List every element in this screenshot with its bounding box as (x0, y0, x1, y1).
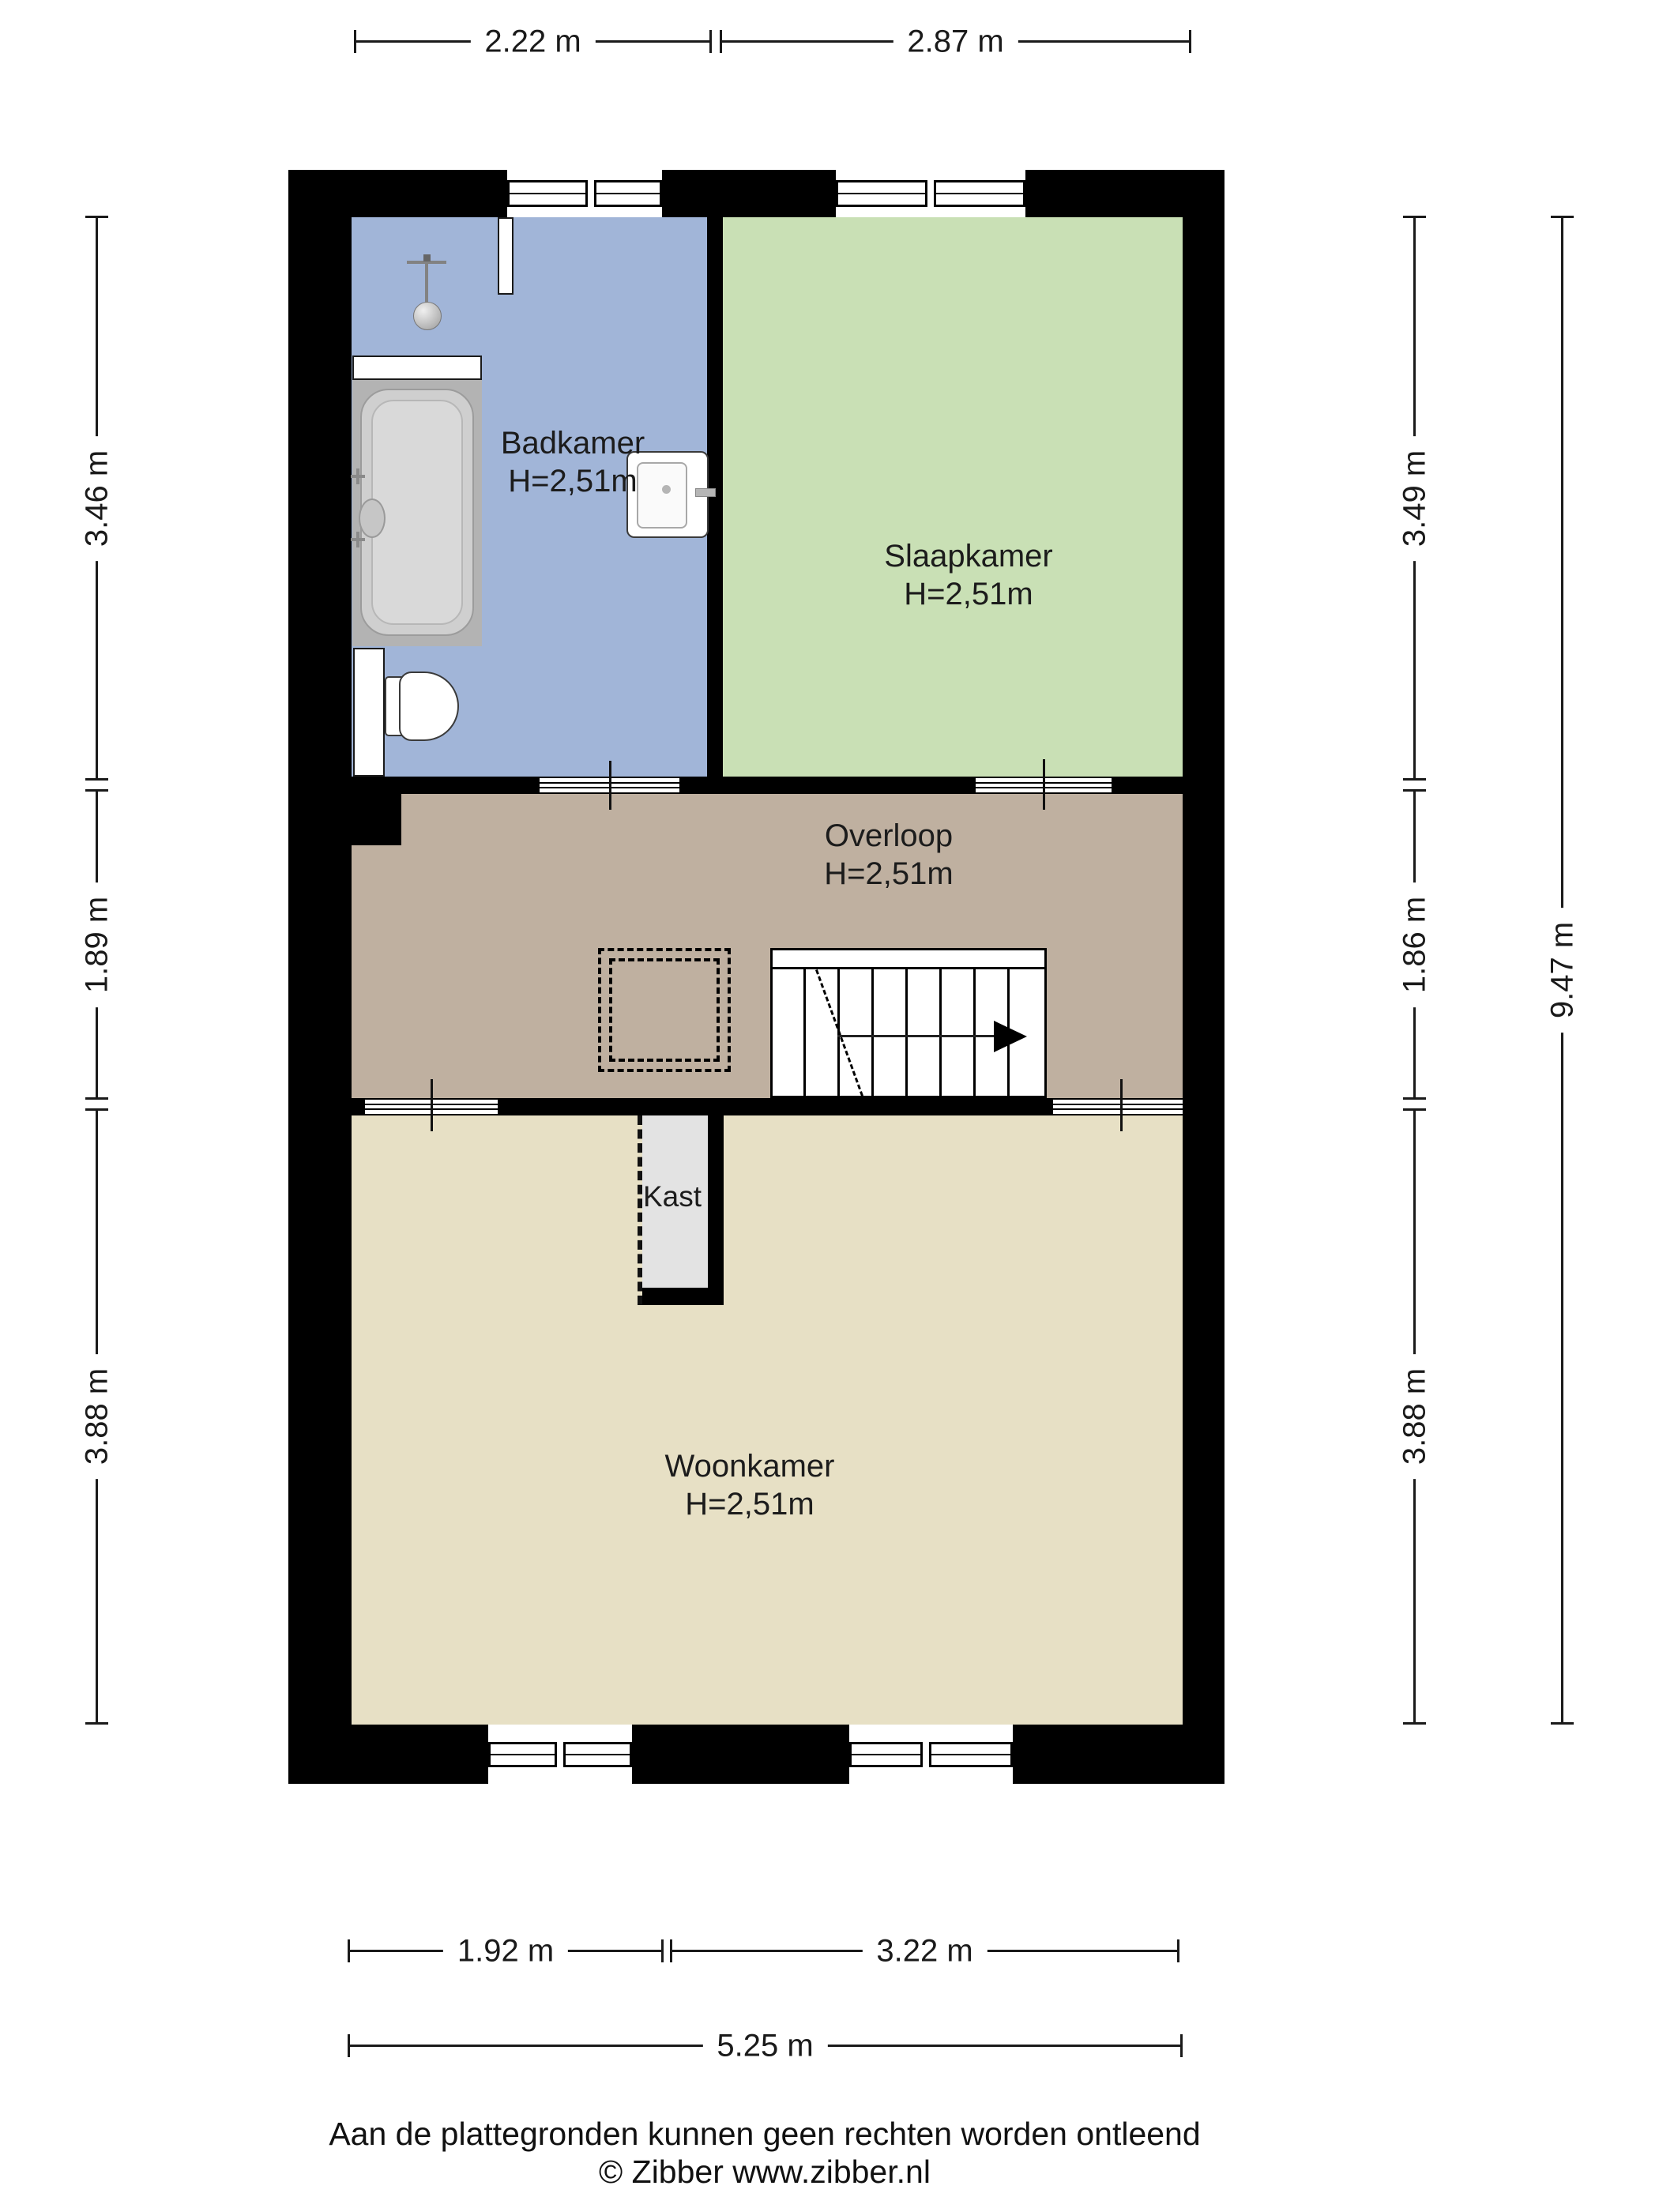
kast-wall-right (708, 1115, 724, 1305)
dim-bottom-total: 5.25 m (348, 2045, 1183, 2047)
ceiling-hatch-inner (609, 958, 720, 1062)
bathtub-spout-icon (359, 498, 386, 538)
room-label-overloop: Overloop H=2,51m (824, 817, 953, 893)
window-glass-line (510, 193, 660, 194)
shower-screen-stub (498, 217, 513, 295)
window-frame (488, 1742, 632, 1767)
window-top-right (836, 170, 1025, 217)
shower-head-icon (403, 253, 450, 332)
room-name: Kast (643, 1180, 702, 1213)
stairs-arrowhead-icon (994, 1021, 1027, 1052)
room-label-slaapkamer: Slaapkamer H=2,51m (884, 537, 1052, 613)
wall-jog (352, 794, 401, 845)
floor-plan: Badkamer H=2,51m Slaapkamer H=2,51m Over… (0, 0, 1659, 2212)
window-mullion (920, 1742, 931, 1767)
window-bottom-right (849, 1725, 1013, 1784)
window-frame (849, 1742, 1013, 1767)
dim-bottom-total-label: 5.25 m (702, 2026, 827, 2065)
room-name: Overloop (824, 817, 953, 855)
kast-dashed-edge (638, 1115, 642, 1305)
door-tick-badkamer (609, 761, 611, 810)
sink-drain (662, 485, 671, 494)
room-name: Woonkamer (665, 1447, 835, 1485)
window-mullion (925, 180, 936, 207)
room-height: H=2,51m (824, 855, 953, 893)
copyright-text: © Zibber www.zibber.nl (329, 2154, 1200, 2191)
stair-tread (803, 969, 806, 1096)
toilet-icon (385, 670, 460, 743)
stair-tread (905, 969, 908, 1096)
stairs-direction-arrow-icon (837, 1035, 999, 1037)
footer: Aan de plattegronden kunnen geen rechten… (329, 2116, 1200, 2191)
stair-tread (973, 969, 976, 1096)
kast-wall-bottom (642, 1288, 724, 1305)
dim-bottom-left: 1.92 m (348, 1950, 664, 1952)
window-mullion (585, 180, 596, 207)
door-tick-slaapkamer (1043, 759, 1045, 810)
room-name: Slaapkamer (884, 537, 1052, 575)
room-overloop-floor (352, 794, 1183, 1098)
window-frame (836, 180, 1025, 207)
dim-bottom-left-label: 1.92 m (443, 1932, 568, 1970)
room-label-badkamer: Badkamer H=2,51m (501, 424, 645, 500)
room-woonkamer-floor (352, 1115, 1183, 1725)
room-label-woonkamer: Woonkamer H=2,51m (665, 1447, 835, 1523)
room-height: H=2,51m (665, 1485, 835, 1523)
room-height: H=2,51m (884, 575, 1052, 613)
window-frame (507, 180, 662, 207)
bathtub-tap-icon (356, 468, 359, 484)
dim-bottom-right-label: 3.22 m (862, 1932, 987, 1970)
shower-sphere (413, 302, 442, 330)
disclaimer-text: Aan de plattegronden kunnen geen rechten… (329, 2116, 1200, 2154)
dim-bottom-right: 3.22 m (670, 1950, 1179, 1952)
shower-stem (425, 264, 428, 305)
badkamer-door-panel (353, 648, 385, 777)
bath-partition (352, 355, 482, 380)
bathtub-tap-icon (356, 532, 359, 547)
door-tick-woonkamer-right (1120, 1079, 1123, 1131)
sink-faucet-icon (695, 488, 716, 497)
room-name: Badkamer (501, 424, 645, 462)
bathtub-icon (352, 380, 482, 646)
window-bottom-left (488, 1725, 632, 1784)
door-tick-woonkamer-left (431, 1079, 433, 1131)
window-mullion (555, 1742, 566, 1767)
room-slaapkamer-floor (723, 217, 1183, 777)
stair-tread (939, 969, 942, 1096)
floorplan-page: 2.22 m 2.87 m 3.46 m 1.89 m 3.88 m 3.49 … (0, 0, 1659, 2212)
room-label-kast: Kast (643, 1180, 702, 1213)
shower-arm (423, 254, 431, 261)
room-height: H=2,51m (501, 462, 645, 500)
stair-tread (871, 969, 874, 1096)
window-top-left (507, 170, 662, 217)
toilet-bowl (399, 671, 459, 741)
door-woonkamer-right (1053, 1098, 1183, 1115)
stairs-landing-line (773, 967, 1044, 969)
